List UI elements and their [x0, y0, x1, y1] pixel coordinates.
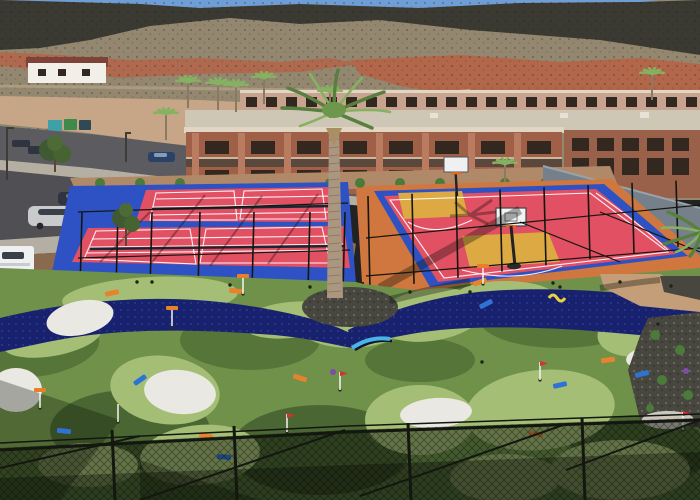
- motel-window: [266, 97, 277, 107]
- tee-marker: [480, 360, 483, 363]
- hotel-window: [389, 141, 413, 154]
- palm-island: [302, 287, 398, 327]
- motel-window: [686, 97, 697, 107]
- tee-marker: [618, 280, 621, 283]
- hotel-window: [343, 141, 367, 154]
- hotel-window: [435, 141, 459, 154]
- white-house: [26, 57, 108, 83]
- motel-window: [246, 97, 257, 107]
- tee-marker: [150, 280, 153, 283]
- hotel-window: [205, 141, 229, 154]
- tee-marker: [468, 290, 471, 293]
- hotel-window: [297, 141, 321, 154]
- brick-building-window: [647, 158, 664, 175]
- dumpster-teal: [48, 120, 62, 131]
- rooftop-ac-unit: [640, 112, 649, 118]
- motel-window: [406, 97, 417, 107]
- motel-window: [526, 97, 537, 107]
- tee-marker: [656, 322, 659, 325]
- purple-obstacle: [330, 369, 336, 375]
- shrub: [355, 178, 365, 188]
- motel-window: [606, 97, 617, 107]
- tee-marker: [551, 281, 554, 284]
- hotel-window: [481, 141, 505, 154]
- tee-marker: [308, 285, 311, 288]
- tee-marker: [228, 283, 231, 286]
- hotel-window: [251, 141, 275, 154]
- brick-building-window: [597, 138, 614, 151]
- tee-marker: [408, 290, 411, 293]
- scene-svg: [0, 0, 700, 500]
- brick-building-window: [647, 138, 664, 151]
- dumpster-green: [64, 119, 77, 130]
- motel-window: [546, 97, 557, 107]
- motel-window: [286, 97, 297, 107]
- brick-building-window: [622, 138, 639, 151]
- motel-window: [626, 97, 637, 107]
- motel-window: [426, 97, 437, 107]
- tee-marker: [669, 284, 672, 287]
- brick-building-window: [572, 138, 589, 151]
- motel-window: [446, 97, 457, 107]
- motel-window: [386, 97, 397, 107]
- blue-sedan: [148, 152, 175, 162]
- tee-marker: [558, 285, 561, 288]
- pickleball-courts: [52, 182, 356, 284]
- motel-window: [466, 97, 477, 107]
- motel-window: [506, 97, 517, 107]
- motel-window: [486, 97, 497, 107]
- dumpster-slate: [79, 120, 91, 130]
- hotel-window: [527, 141, 551, 154]
- parked-car-dark-1: [12, 140, 30, 147]
- motel-window: [586, 97, 597, 107]
- brick-building-window: [672, 138, 689, 151]
- brick-building-window: [672, 158, 689, 175]
- tee-marker: [135, 280, 138, 283]
- brick-building-window: [622, 158, 639, 175]
- aerial-resort-photo: [0, 0, 700, 500]
- motel-window: [566, 97, 577, 107]
- purple-obstacle: [683, 368, 689, 374]
- motel-window: [666, 97, 677, 107]
